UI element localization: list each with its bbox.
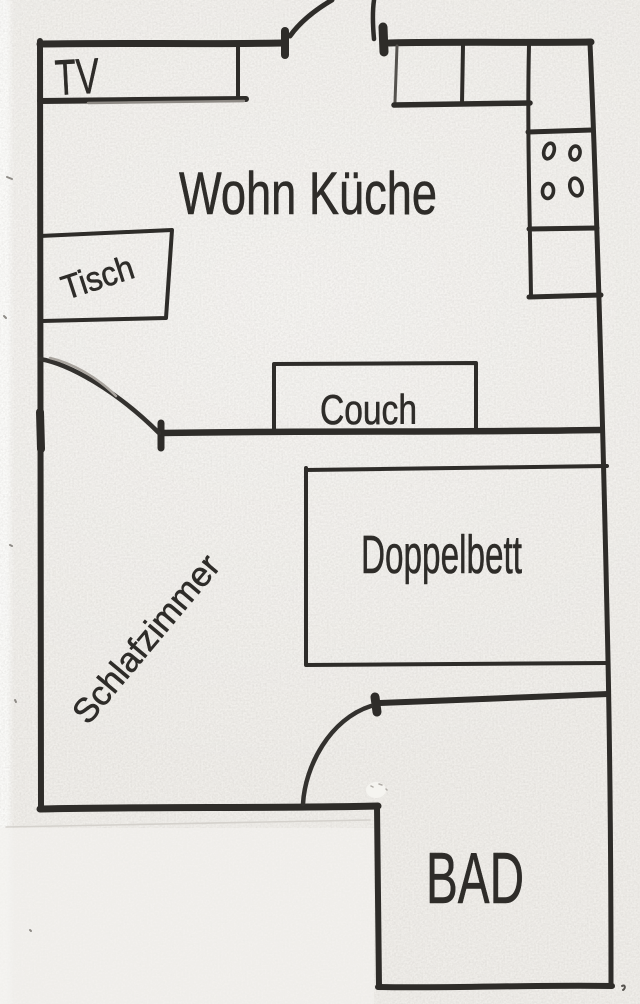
svg-text:TV: TV [54, 48, 101, 106]
svg-text:BAD: BAD [426, 839, 524, 919]
svg-text:Tisch: Tisch [57, 249, 139, 308]
svg-text:Schlafzimmer: Schlafzimmer [65, 547, 228, 731]
svg-text:Wohn Küche: Wohn Küche [179, 160, 437, 227]
svg-text:Doppelbett: Doppelbett [361, 525, 522, 585]
svg-text:Couch: Couch [320, 386, 417, 433]
